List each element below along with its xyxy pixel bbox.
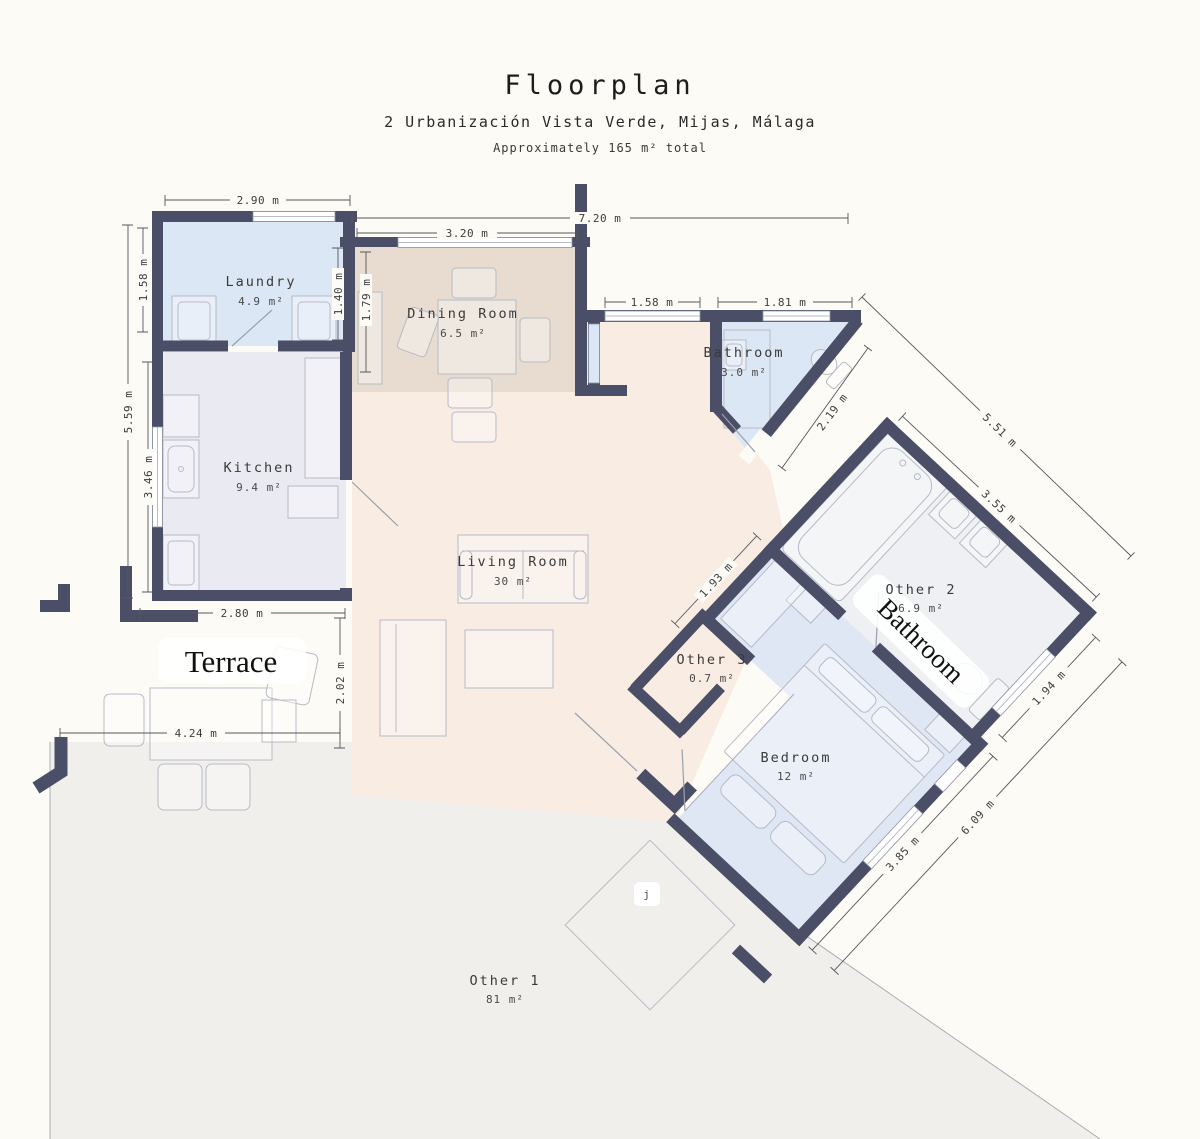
terrace-chair-icon <box>206 764 250 810</box>
dim-terrace-bottom: 4.24 m <box>175 727 218 740</box>
kitchen-area: 9.4 m² <box>236 481 282 494</box>
other2-area: 6.9 m² <box>898 602 944 615</box>
dim-bath-window: 1.81 m <box>764 296 807 309</box>
other1-area: 81 m² <box>486 993 524 1006</box>
dining-label: Dining Room <box>407 306 518 322</box>
chair-icon <box>520 318 550 362</box>
armchair-icon <box>380 620 446 736</box>
chair-icon <box>452 268 496 298</box>
living-area: 30 m² <box>494 575 532 588</box>
dim-dining-left: 1.79 m <box>360 279 373 322</box>
terrace-chair-icon <box>158 764 202 810</box>
hall-side-window <box>589 324 600 383</box>
kitchen-label: Kitchen <box>224 460 295 476</box>
dim-overall-top: 7.20 m <box>579 212 622 225</box>
counter-icon <box>163 395 199 437</box>
coffee-table-icon <box>465 630 553 688</box>
chair-icon <box>452 412 496 442</box>
terrace-label: Terrace <box>158 638 306 684</box>
chair-icon <box>448 378 492 408</box>
dim-right-diag: 5.51 m <box>980 411 1020 450</box>
bedroom-label: Bedroom <box>761 750 832 766</box>
bedroom-area: 12 m² <box>777 770 815 783</box>
dim-bedroom-se-overall: 6.09 m <box>958 797 997 837</box>
marker-j-label: j <box>643 888 651 901</box>
dining-area: 6.5 m² <box>440 327 486 340</box>
laundry-label: Laundry <box>226 274 297 290</box>
other3-area: 0.7 m² <box>689 672 735 685</box>
other3-label: Other 3 <box>677 652 748 668</box>
side-table-icon <box>262 700 296 742</box>
terrace-label-text: Terrace <box>185 644 277 679</box>
bathroom-label: Bathroom <box>703 345 784 361</box>
dim-laundry-right: 1.40 m <box>332 273 345 316</box>
exterior-stub-a <box>40 584 70 606</box>
dim-laundry-top: 2.90 m <box>237 194 280 207</box>
floorplan-drawing: j <box>0 0 1200 1139</box>
laundry-dining-wall <box>346 211 349 601</box>
bathroom-area: 3.0 m² <box>721 366 767 379</box>
terrace-chair-icon <box>104 694 144 746</box>
other2-label: Other 2 <box>886 582 957 598</box>
dim-hall-window: 1.58 m <box>631 296 674 309</box>
other1-label: Other 1 <box>470 973 541 989</box>
living-label: Living Room <box>457 554 568 570</box>
terrace-corner-wall <box>36 737 61 788</box>
dim-kitchen-bottom: 2.80 m <box>221 607 264 620</box>
dim-laundry-left: 1.58 m <box>137 259 150 302</box>
dim-overall-left: 5.59 m <box>122 391 135 434</box>
dim-dining-top: 3.20 m <box>446 227 489 240</box>
terrace-table-icon <box>150 688 272 760</box>
dim-kitchen-left: 3.46 m <box>142 456 155 499</box>
dim-terrace-right: 2.02 m <box>334 662 347 705</box>
island-icon <box>288 486 338 518</box>
floorplan-page: Floorplan 2 Urbanización Vista Verde, Mi… <box>0 0 1200 1139</box>
laundry-area: 4.9 m² <box>238 295 284 308</box>
